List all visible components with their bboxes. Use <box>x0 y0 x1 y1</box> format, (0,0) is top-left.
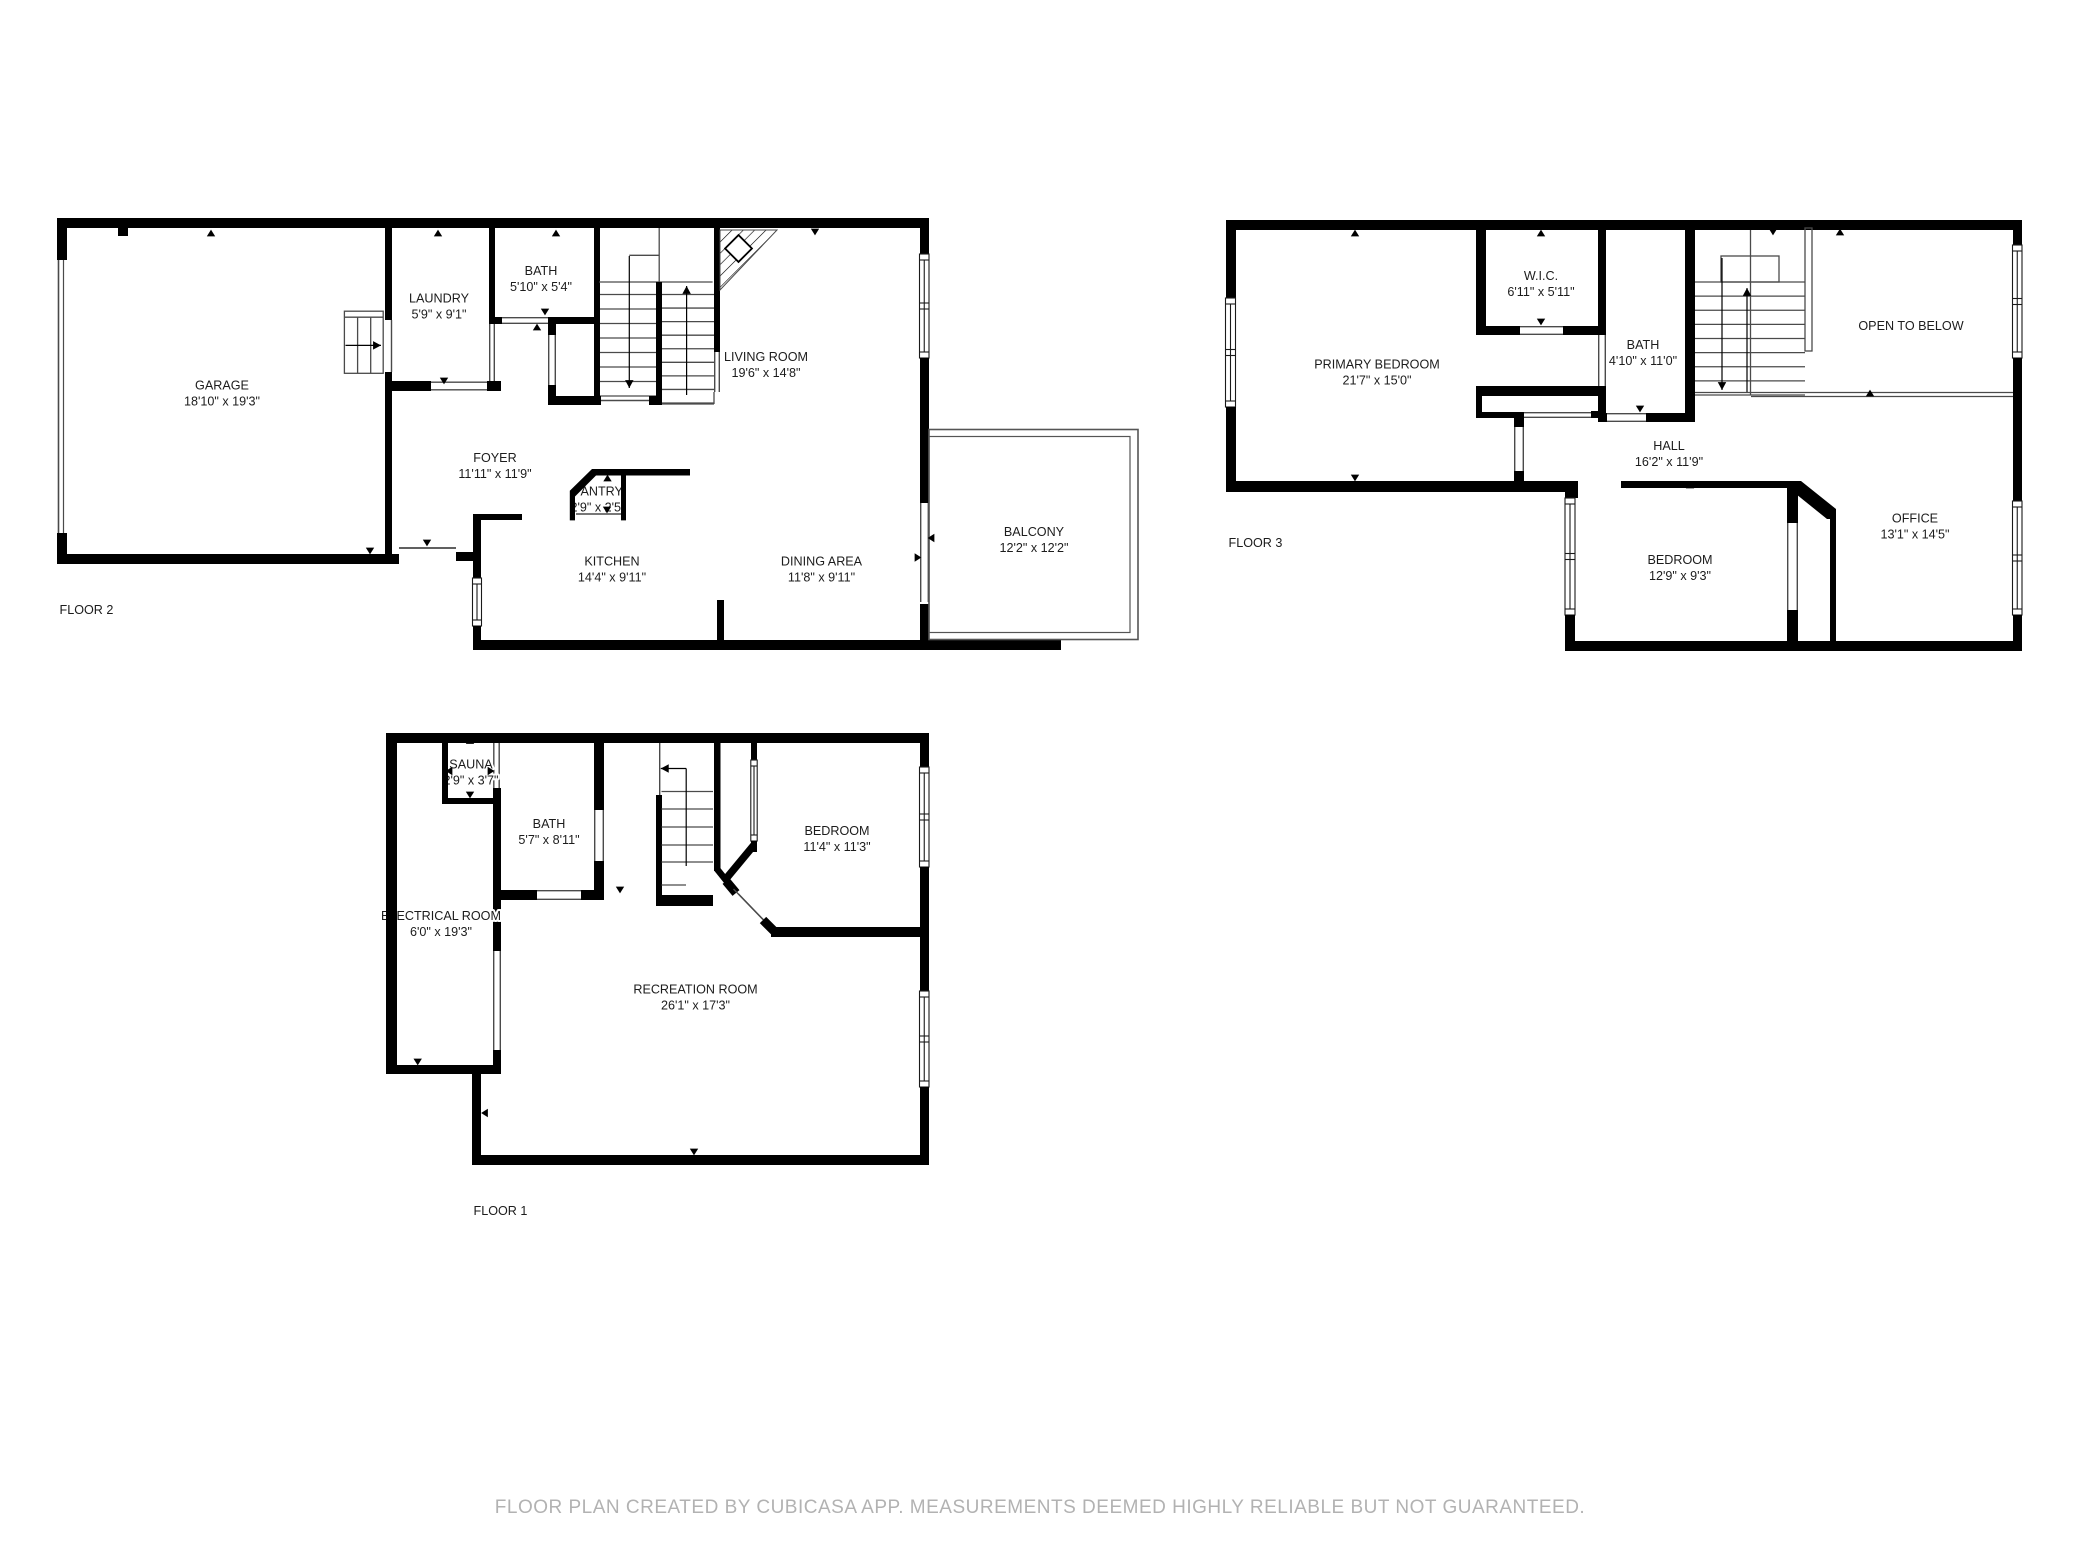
svg-text:FLOOR PLAN CREATED BY CUBICASA: FLOOR PLAN CREATED BY CUBICASA APP. MEAS… <box>495 1497 1585 1518</box>
svg-text:PRIMARY BEDROOM: PRIMARY BEDROOM <box>1314 358 1440 372</box>
svg-text:W.I.C.: W.I.C. <box>1524 269 1558 283</box>
svg-text:BEDROOM: BEDROOM <box>804 824 869 838</box>
svg-text:5'9" x 9'1": 5'9" x 9'1" <box>411 308 466 322</box>
svg-text:2'9" x 2'5": 2'9" x 2'5" <box>570 501 625 515</box>
svg-text:11'8" x 9'11": 11'8" x 9'11" <box>788 571 855 585</box>
svg-text:12'9" x 9'3": 12'9" x 9'3" <box>1649 569 1711 583</box>
svg-text:OFFICE: OFFICE <box>1892 512 1938 526</box>
svg-text:12'2" x 12'2": 12'2" x 12'2" <box>999 541 1068 555</box>
svg-text:GARAGE: GARAGE <box>195 379 249 393</box>
svg-text:26'1" x 17'3": 26'1" x 17'3" <box>661 999 730 1013</box>
svg-text:OPEN TO BELOW: OPEN TO BELOW <box>1858 319 1963 333</box>
svg-text:FLOOR 2: FLOOR 2 <box>60 603 114 617</box>
svg-text:6'0" x 19'3": 6'0" x 19'3" <box>410 925 472 939</box>
svg-text:FLOOR 1: FLOOR 1 <box>474 1204 528 1218</box>
svg-text:BEDROOM: BEDROOM <box>1647 553 1712 567</box>
svg-text:6'11" x 5'11": 6'11" x 5'11" <box>1507 285 1574 299</box>
svg-text:LIVING ROOM: LIVING ROOM <box>724 350 808 364</box>
svg-text:21'7" x 15'0": 21'7" x 15'0" <box>1342 374 1411 388</box>
svg-text:11'4" x 11'3": 11'4" x 11'3" <box>803 840 870 854</box>
svg-text:19'6" x 14'8": 19'6" x 14'8" <box>731 366 800 380</box>
svg-text:5'10" x 5'4": 5'10" x 5'4" <box>510 280 572 294</box>
svg-text:4'10" x 11'0": 4'10" x 11'0" <box>1609 354 1677 368</box>
svg-text:LAUNDRY: LAUNDRY <box>409 292 470 306</box>
svg-text:HALL: HALL <box>1653 439 1685 453</box>
svg-text:FLOOR 3: FLOOR 3 <box>1229 536 1283 550</box>
svg-text:SAUNA: SAUNA <box>449 758 493 772</box>
svg-text:BATH: BATH <box>533 817 566 831</box>
svg-text:FOYER: FOYER <box>473 451 516 465</box>
svg-text:5'7" x 8'11": 5'7" x 8'11" <box>518 833 579 847</box>
svg-text:13'1" x 14'5": 13'1" x 14'5" <box>1880 528 1949 542</box>
svg-text:14'4" x 9'11": 14'4" x 9'11" <box>578 571 646 585</box>
svg-text:18'10" x 19'3": 18'10" x 19'3" <box>184 395 260 409</box>
svg-text:ELECTRICAL ROOM: ELECTRICAL ROOM <box>381 909 501 923</box>
svg-text:RECREATION ROOM: RECREATION ROOM <box>633 983 757 997</box>
svg-text:11'11" x 11'9": 11'11" x 11'9" <box>458 467 531 481</box>
svg-text:16'2" x 11'9": 16'2" x 11'9" <box>1635 455 1703 469</box>
svg-text:2'9" x 3'7": 2'9" x 3'7" <box>443 774 498 788</box>
svg-text:BALCONY: BALCONY <box>1004 525 1065 539</box>
svg-text:DINING AREA: DINING AREA <box>781 555 863 569</box>
svg-text:BATH: BATH <box>1627 338 1660 352</box>
svg-text:KITCHEN: KITCHEN <box>584 555 639 569</box>
svg-text:BATH: BATH <box>525 264 558 278</box>
